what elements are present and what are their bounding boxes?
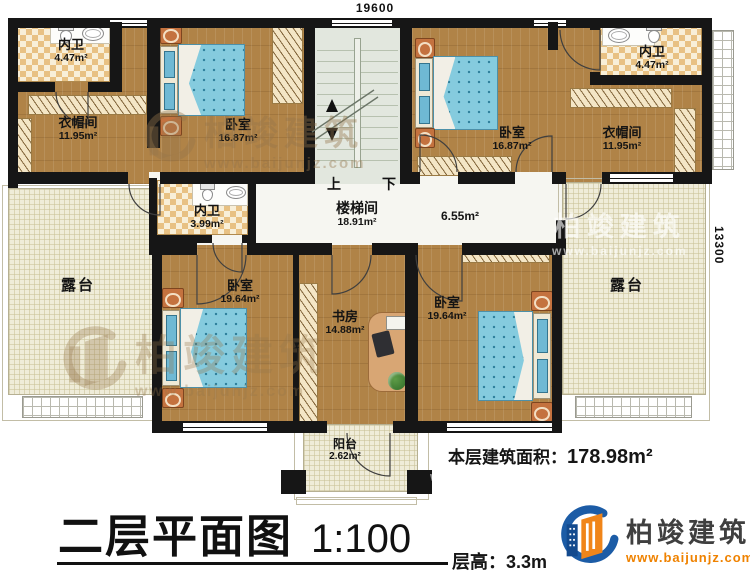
- terrace-right-railing: [575, 396, 692, 418]
- brand-logo-icon: [550, 505, 620, 571]
- window: [447, 421, 552, 433]
- room-label-closet-tl: 衣帽间11.95m²: [38, 116, 118, 142]
- bed-headboard: [533, 313, 551, 399]
- bed: [478, 311, 533, 401]
- nightstand: [531, 291, 553, 311]
- wardrobe-closet-tr-top: [570, 88, 672, 108]
- window: [183, 421, 267, 433]
- pillar: [407, 470, 432, 494]
- bed: [180, 308, 247, 388]
- room-label-bedroom-tl: 卧室16.87m²: [198, 118, 278, 144]
- scale-label: 1:100: [311, 517, 411, 562]
- room-label-bath-mid: 内卫3.99m²: [167, 204, 247, 230]
- page-title: 二层平面图: [58, 500, 293, 565]
- sink-icon: [608, 28, 630, 43]
- room-label-closet-tr: 衣帽间11.95m²: [582, 126, 662, 152]
- room-label-balcony: 阳台2.62m²: [310, 438, 380, 463]
- window: [332, 18, 392, 28]
- floor-area-line: 本层建筑面积：178.98m²: [448, 443, 653, 469]
- bed: [178, 44, 245, 116]
- dimension-top: 19600: [340, 1, 410, 15]
- bed: [433, 56, 498, 130]
- nightstand: [415, 38, 435, 58]
- floor-area-label: 本层建筑面积：: [448, 448, 567, 467]
- wardrobe-bedroom-tl: [272, 26, 303, 104]
- bed-headboard: [162, 310, 180, 386]
- room-label-bath-tr: 内卫4.47m²: [612, 45, 692, 71]
- brand-name: 柏竣建筑: [626, 511, 750, 550]
- title-block: 二层平面图 1:100: [58, 500, 411, 565]
- dimension-right: 13300: [712, 226, 726, 264]
- stair-up-label: 上: [327, 174, 341, 194]
- toilet-icon: [200, 182, 215, 202]
- room-label-bedroom-br: 卧室19.64m²: [407, 296, 487, 322]
- side-rack: [712, 30, 734, 170]
- laptop-icon: [386, 316, 406, 330]
- nightstand: [162, 288, 184, 308]
- nightstand: [415, 128, 435, 148]
- wardrobe-bedroom-bl: [299, 283, 318, 425]
- floor-height-label: 层高：3.3m: [452, 548, 547, 574]
- room-label-bath-tl: 内卫4.47m²: [31, 38, 111, 64]
- sink-icon: [226, 186, 246, 199]
- terrace-left-railing: [22, 396, 143, 418]
- wardrobe-closet-tl-top: [28, 95, 147, 115]
- plant-icon: [388, 372, 406, 390]
- bed-headboard: [160, 46, 178, 114]
- floor-plan-page: 19600 13300: [0, 0, 750, 580]
- nightstand: [531, 402, 553, 422]
- nightstand: [160, 116, 182, 136]
- bed-headboard: [415, 58, 433, 128]
- corridor-area-label: 6.55m²: [425, 209, 495, 223]
- brand-block: 柏竣建筑 www.baijunjz.com: [550, 505, 750, 571]
- floor-area-value: 178.98m²: [567, 446, 653, 468]
- room-label-bedroom-tr: 卧室16.87m²: [472, 126, 552, 152]
- nightstand: [162, 388, 184, 408]
- room-label-study: 书房14.88m²: [305, 310, 385, 336]
- stair-handrail: [354, 38, 361, 168]
- title-underline: [57, 562, 448, 565]
- room-label-terrace-left: 露台: [38, 278, 118, 295]
- window: [610, 172, 673, 184]
- pillar: [281, 470, 306, 494]
- room-label-stairwell: 楼梯间18.91m²: [317, 201, 397, 228]
- wardrobe-closet-tr-right: [674, 108, 696, 176]
- stair-down-label: 下: [382, 174, 396, 194]
- room-label-bedroom-bl: 卧室19.64m²: [200, 279, 280, 305]
- room-label-terrace-right: 露台: [587, 278, 667, 295]
- brand-website: www.baijunjz.com: [626, 550, 750, 565]
